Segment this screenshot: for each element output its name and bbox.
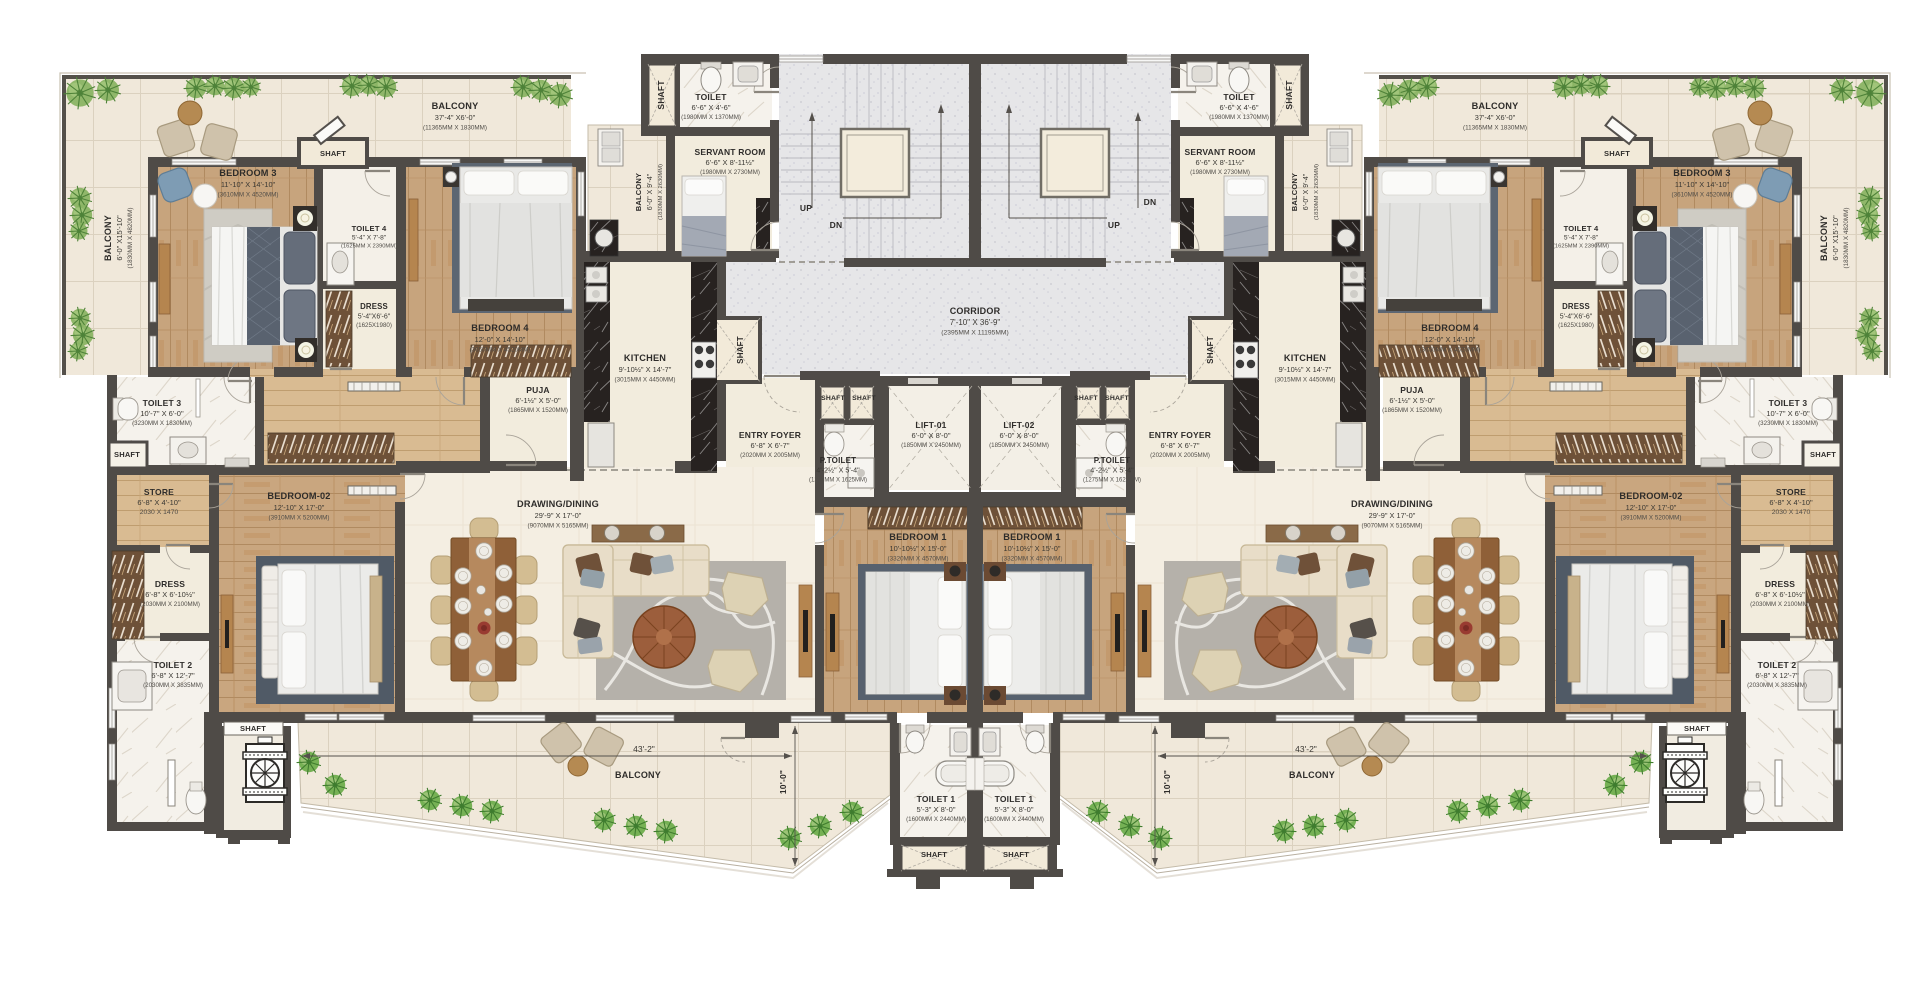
- svg-text:10'-0": 10'-0": [778, 770, 788, 794]
- svg-text:SHAFT: SHAFT: [1684, 724, 1710, 733]
- svg-text:7'-10" X 36'-9": 7'-10" X 36'-9": [950, 318, 1001, 327]
- svg-text:(3650MM X 4520MM): (3650MM X 4520MM): [1420, 347, 1481, 354]
- svg-text:(2020MM X 2005MM): (2020MM X 2005MM): [740, 452, 800, 459]
- svg-text:6'-0" X 8'-0": 6'-0" X 8'-0": [911, 431, 950, 440]
- svg-text:10'-10½" X 15'-0": 10'-10½" X 15'-0": [1004, 544, 1061, 553]
- svg-text:6'-0" X 9'-4": 6'-0" X 9'-4": [1303, 173, 1310, 210]
- svg-text:(2030MM X 2100MM): (2030MM X 2100MM): [1750, 601, 1810, 608]
- svg-text:43'-2": 43'-2": [1295, 744, 1317, 754]
- svg-text:6'-1½" X 5'-0": 6'-1½" X 5'-0": [1389, 396, 1435, 405]
- svg-text:UP: UP: [1108, 220, 1120, 230]
- svg-text:DRAWING/DINING: DRAWING/DINING: [517, 499, 599, 509]
- svg-text:(3230MM X 1830MM): (3230MM X 1830MM): [1758, 420, 1818, 427]
- svg-text:12'-10" X 17'-0": 12'-10" X 17'-0": [1626, 503, 1677, 512]
- svg-text:(3610MM X 4520MM): (3610MM X 4520MM): [218, 192, 279, 199]
- svg-text:BEDROOM-02: BEDROOM-02: [1619, 491, 1682, 501]
- svg-text:TOILET 1: TOILET 1: [917, 794, 956, 804]
- svg-text:11'-10" X 14'-10": 11'-10" X 14'-10": [221, 180, 276, 189]
- svg-text:(1275MM X 1625MM): (1275MM X 1625MM): [809, 478, 867, 484]
- svg-text:5'-4"X6'-6": 5'-4"X6'-6": [1560, 314, 1593, 321]
- svg-text:BEDROOM-02: BEDROOM-02: [267, 491, 330, 501]
- svg-text:6'-6" X 8'-11½": 6'-6" X 8'-11½": [1196, 158, 1245, 167]
- svg-text:(1625MM X 2390MM): (1625MM X 2390MM): [1553, 244, 1609, 250]
- svg-text:(1830MM X 2630MM): (1830MM X 2630MM): [658, 164, 664, 220]
- svg-text:SHAFT: SHAFT: [1284, 80, 1294, 110]
- svg-text:29'-9" X 17'-0": 29'-9" X 17'-0": [535, 511, 582, 520]
- svg-text:5'-3" X 8'-0": 5'-3" X 8'-0": [994, 805, 1033, 814]
- svg-text:(11365MM X 1830MM): (11365MM X 1830MM): [423, 125, 487, 132]
- svg-text:10'-7" X 6'-0": 10'-7" X 6'-0": [140, 409, 184, 418]
- svg-text:6'-0" X15'-10": 6'-0" X15'-10": [115, 215, 124, 261]
- svg-text:SERVANT ROOM: SERVANT ROOM: [694, 147, 765, 157]
- svg-text:ENTRY FOYER: ENTRY FOYER: [739, 430, 801, 440]
- svg-text:TOILET 2: TOILET 2: [154, 660, 193, 670]
- svg-text:6'-0" X 8'-0": 6'-0" X 8'-0": [999, 431, 1038, 440]
- svg-text:12'-0" X 14'-10": 12'-0" X 14'-10": [475, 335, 526, 344]
- svg-text:(2395MM X 11195MM): (2395MM X 11195MM): [941, 330, 1008, 337]
- svg-text:BALCONY: BALCONY: [1819, 215, 1829, 261]
- svg-text:SHAFT: SHAFT: [1074, 395, 1098, 402]
- svg-text:10'-10½" X 15'-0": 10'-10½" X 15'-0": [890, 544, 947, 553]
- svg-text:LIFT-02: LIFT-02: [1003, 420, 1034, 430]
- svg-text:BALCONY: BALCONY: [615, 770, 661, 780]
- svg-text:KITCHEN: KITCHEN: [624, 353, 666, 363]
- svg-text:LIFT-01: LIFT-01: [915, 420, 946, 430]
- svg-text:DRESS: DRESS: [360, 302, 388, 311]
- svg-text:(3320MM X 4570MM): (3320MM X 4570MM): [888, 556, 949, 563]
- svg-text:DRAWING/DINING: DRAWING/DINING: [1351, 499, 1433, 509]
- svg-text:4'-2½" X 5'-4": 4'-2½" X 5'-4": [816, 466, 860, 475]
- svg-text:10'-0": 10'-0": [1162, 770, 1172, 794]
- svg-text:DN: DN: [1144, 197, 1157, 207]
- svg-text:6'-6" X 4'-6": 6'-6" X 4'-6": [691, 103, 730, 112]
- svg-text:4'-2½" X 5'-4": 4'-2½" X 5'-4": [1090, 466, 1134, 475]
- svg-text:6'-8" X 4'-10": 6'-8" X 4'-10": [1769, 498, 1813, 507]
- svg-text:37'-4" X6'-0": 37'-4" X6'-0": [435, 113, 476, 122]
- svg-text:TOILET: TOILET: [695, 92, 727, 102]
- svg-text:6'-1½" X 5'-0": 6'-1½" X 5'-0": [515, 396, 561, 405]
- svg-text:6'-8" X 6'-10½": 6'-8" X 6'-10½": [1755, 590, 1805, 599]
- svg-text:(1980MM X 1370MM): (1980MM X 1370MM): [1209, 114, 1269, 121]
- svg-text:SHAFT: SHAFT: [320, 149, 346, 158]
- svg-text:5'-3" X 8'-0": 5'-3" X 8'-0": [916, 805, 955, 814]
- svg-text:6'-6" X 8'-11½": 6'-6" X 8'-11½": [706, 158, 755, 167]
- svg-text:(11365MM X 1830MM): (11365MM X 1830MM): [1463, 125, 1527, 132]
- svg-text:TOILET 4: TOILET 4: [352, 224, 387, 233]
- svg-text:TOILET 4: TOILET 4: [1564, 224, 1599, 233]
- svg-text:(1865MM X 1520MM): (1865MM X 1520MM): [1382, 407, 1442, 414]
- svg-text:SHAFT: SHAFT: [656, 80, 666, 110]
- svg-text:SHAFT: SHAFT: [821, 395, 845, 402]
- svg-text:UP: UP: [800, 203, 812, 213]
- svg-text:2030 X 1470: 2030 X 1470: [140, 509, 179, 516]
- svg-text:(3320MM X 4570MM): (3320MM X 4570MM): [1002, 556, 1063, 563]
- svg-text:2030 X 1470: 2030 X 1470: [1772, 509, 1811, 516]
- svg-text:P.TOILET: P.TOILET: [820, 456, 856, 465]
- svg-text:STORE: STORE: [1776, 487, 1806, 497]
- svg-text:TOILET 3: TOILET 3: [143, 398, 182, 408]
- svg-text:5'-4" X 7'-8": 5'-4" X 7'-8": [1564, 235, 1599, 242]
- svg-text:(1980MM X 2730MM): (1980MM X 2730MM): [1190, 169, 1250, 176]
- svg-text:PUJA: PUJA: [1400, 385, 1423, 395]
- svg-text:6'-6" X 4'-6": 6'-6" X 4'-6": [1219, 103, 1258, 112]
- svg-text:CORRIDOR: CORRIDOR: [950, 306, 1001, 316]
- svg-text:TOILET 1: TOILET 1: [995, 794, 1034, 804]
- svg-text:BALCONY: BALCONY: [1472, 101, 1519, 111]
- svg-text:DRESS: DRESS: [1765, 579, 1795, 589]
- svg-text:9'-10½" X 14'-7": 9'-10½" X 14'-7": [1279, 365, 1332, 374]
- svg-text:BALCONY: BALCONY: [103, 215, 113, 261]
- svg-text:BEDROOM 4: BEDROOM 4: [471, 323, 529, 333]
- svg-text:TOILET 2: TOILET 2: [1758, 660, 1797, 670]
- svg-text:(1830MM X 2630MM): (1830MM X 2630MM): [1314, 164, 1320, 220]
- svg-text:SHAFT: SHAFT: [1810, 450, 1836, 459]
- svg-text:10'-7" X 6'-0": 10'-7" X 6'-0": [1766, 409, 1810, 418]
- svg-text:PUJA: PUJA: [526, 385, 549, 395]
- svg-text:(2030MM X 3835MM): (2030MM X 3835MM): [1747, 682, 1807, 689]
- svg-text:(2030MM X 2100MM): (2030MM X 2100MM): [140, 601, 200, 608]
- svg-text:TOILET: TOILET: [1223, 92, 1255, 102]
- svg-text:SHAFT: SHAFT: [1604, 149, 1630, 158]
- svg-text:6'-8" X 6'-10½": 6'-8" X 6'-10½": [145, 590, 195, 599]
- svg-text:DN: DN: [830, 220, 843, 230]
- svg-text:29'-9" X 17'-0": 29'-9" X 17'-0": [1369, 511, 1416, 520]
- svg-text:(3230MM X 1830MM): (3230MM X 1830MM): [132, 420, 192, 427]
- svg-text:TOILET 3: TOILET 3: [1769, 398, 1808, 408]
- svg-text:6'-0" X 9'-4": 6'-0" X 9'-4": [647, 173, 654, 210]
- svg-text:(1625X1980): (1625X1980): [1558, 322, 1594, 329]
- svg-text:SHAFT: SHAFT: [1206, 336, 1215, 364]
- svg-text:BALCONY: BALCONY: [1289, 770, 1335, 780]
- svg-text:KITCHEN: KITCHEN: [1284, 353, 1326, 363]
- svg-text:5'-4"X6'-6": 5'-4"X6'-6": [358, 314, 391, 321]
- svg-text:(3910MM X 5200MM): (3910MM X 5200MM): [1621, 515, 1682, 522]
- svg-text:(2020MM X 2005MM): (2020MM X 2005MM): [1150, 452, 1210, 459]
- svg-text:11'-10" X 14'-10": 11'-10" X 14'-10": [1675, 180, 1730, 189]
- svg-text:BALCONY: BALCONY: [634, 173, 643, 211]
- svg-text:6'-0" X15'-10": 6'-0" X15'-10": [1831, 215, 1840, 261]
- svg-text:(1850MM X 2450MM): (1850MM X 2450MM): [901, 442, 961, 449]
- svg-text:BEDROOM 3: BEDROOM 3: [1673, 168, 1730, 178]
- svg-text:DRESS: DRESS: [1562, 302, 1590, 311]
- svg-text:SHAFT: SHAFT: [240, 724, 266, 733]
- svg-text:(1830MM X 4820MM): (1830MM X 4820MM): [1843, 208, 1850, 269]
- svg-text:(2030MM X 3835MM): (2030MM X 3835MM): [143, 682, 203, 689]
- svg-text:5'-4" X 7'-8": 5'-4" X 7'-8": [352, 235, 387, 242]
- svg-text:(3610MM X 4520MM): (3610MM X 4520MM): [1672, 192, 1733, 199]
- svg-text:BEDROOM 1: BEDROOM 1: [1003, 532, 1060, 542]
- svg-text:SHAFT: SHAFT: [114, 450, 140, 459]
- svg-text:6'-8" X 6'-7": 6'-8" X 6'-7": [750, 441, 789, 450]
- svg-text:SHAFT: SHAFT: [1003, 850, 1029, 859]
- svg-text:(9070MM X 5165MM): (9070MM X 5165MM): [1362, 523, 1423, 530]
- svg-text:DRESS: DRESS: [155, 579, 185, 589]
- svg-text:SERVANT ROOM: SERVANT ROOM: [1184, 147, 1255, 157]
- svg-text:6'-8" X 6'-7": 6'-8" X 6'-7": [1160, 441, 1199, 450]
- svg-text:(1865MM X 1520MM): (1865MM X 1520MM): [508, 407, 568, 414]
- svg-text:(1625MM X 2390MM): (1625MM X 2390MM): [341, 244, 397, 250]
- svg-text:STORE: STORE: [144, 487, 174, 497]
- svg-text:12'-0" X 14'-10": 12'-0" X 14'-10": [1425, 335, 1476, 344]
- svg-text:BALCONY: BALCONY: [1290, 173, 1299, 211]
- svg-text:12'-10" X 17'-0": 12'-10" X 17'-0": [274, 503, 325, 512]
- svg-text:SHAFT: SHAFT: [1105, 395, 1129, 402]
- svg-text:BEDROOM 1: BEDROOM 1: [889, 532, 946, 542]
- svg-text:6'-8" X 12'-7": 6'-8" X 12'-7": [151, 671, 195, 680]
- svg-text:(1625X1980): (1625X1980): [356, 322, 392, 329]
- svg-text:(3910MM X 5200MM): (3910MM X 5200MM): [269, 515, 330, 522]
- svg-text:BALCONY: BALCONY: [432, 101, 479, 111]
- svg-text:SHAFT: SHAFT: [921, 850, 947, 859]
- svg-text:P.TOILET: P.TOILET: [1094, 456, 1130, 465]
- svg-text:37'-4" X6'-0": 37'-4" X6'-0": [1475, 113, 1516, 122]
- svg-text:(9070MM X 5165MM): (9070MM X 5165MM): [528, 523, 589, 530]
- svg-text:(3015MM X 4450MM): (3015MM X 4450MM): [1275, 377, 1336, 384]
- svg-text:BEDROOM 3: BEDROOM 3: [219, 168, 276, 178]
- svg-text:6'-8" X 12'-7": 6'-8" X 12'-7": [1755, 671, 1799, 680]
- svg-text:(1980MM X 1370MM): (1980MM X 1370MM): [681, 114, 741, 121]
- svg-text:(3650MM X 4520MM): (3650MM X 4520MM): [470, 347, 531, 354]
- svg-text:BEDROOM 4: BEDROOM 4: [1421, 323, 1479, 333]
- svg-text:(1600MM X 2440MM): (1600MM X 2440MM): [906, 816, 966, 823]
- svg-text:9'-10½" X 14'-7": 9'-10½" X 14'-7": [619, 365, 672, 374]
- svg-text:(1600MM X 2440MM): (1600MM X 2440MM): [984, 816, 1044, 823]
- svg-text:(1980MM X 2730MM): (1980MM X 2730MM): [700, 169, 760, 176]
- svg-text:SHAFT: SHAFT: [852, 395, 876, 402]
- svg-text:43'-2": 43'-2": [633, 744, 655, 754]
- svg-text:(1850MM X 2450MM): (1850MM X 2450MM): [989, 442, 1049, 449]
- svg-text:SHAFT: SHAFT: [736, 336, 745, 364]
- svg-text:6'-8" X 4'-10": 6'-8" X 4'-10": [137, 498, 181, 507]
- svg-text:(1275MM X 1625MM): (1275MM X 1625MM): [1083, 478, 1141, 484]
- svg-text:ENTRY FOYER: ENTRY FOYER: [1149, 430, 1211, 440]
- svg-text:(1830MM X 4820MM): (1830MM X 4820MM): [127, 208, 134, 269]
- svg-text:(3015MM X 4450MM): (3015MM X 4450MM): [615, 377, 676, 384]
